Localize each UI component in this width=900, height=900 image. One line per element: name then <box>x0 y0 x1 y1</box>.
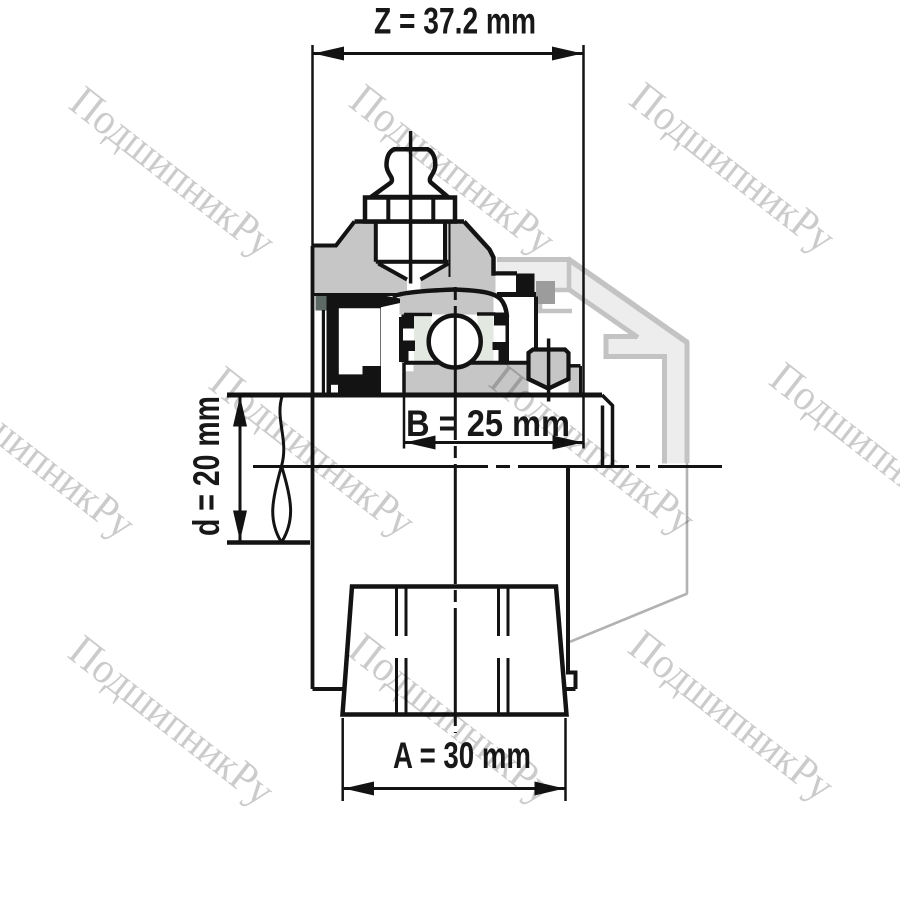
svg-text:d = 20 mm: d = 20 mm <box>186 396 227 536</box>
svg-text:Z = 37.2 mm: Z = 37.2 mm <box>374 1 536 42</box>
